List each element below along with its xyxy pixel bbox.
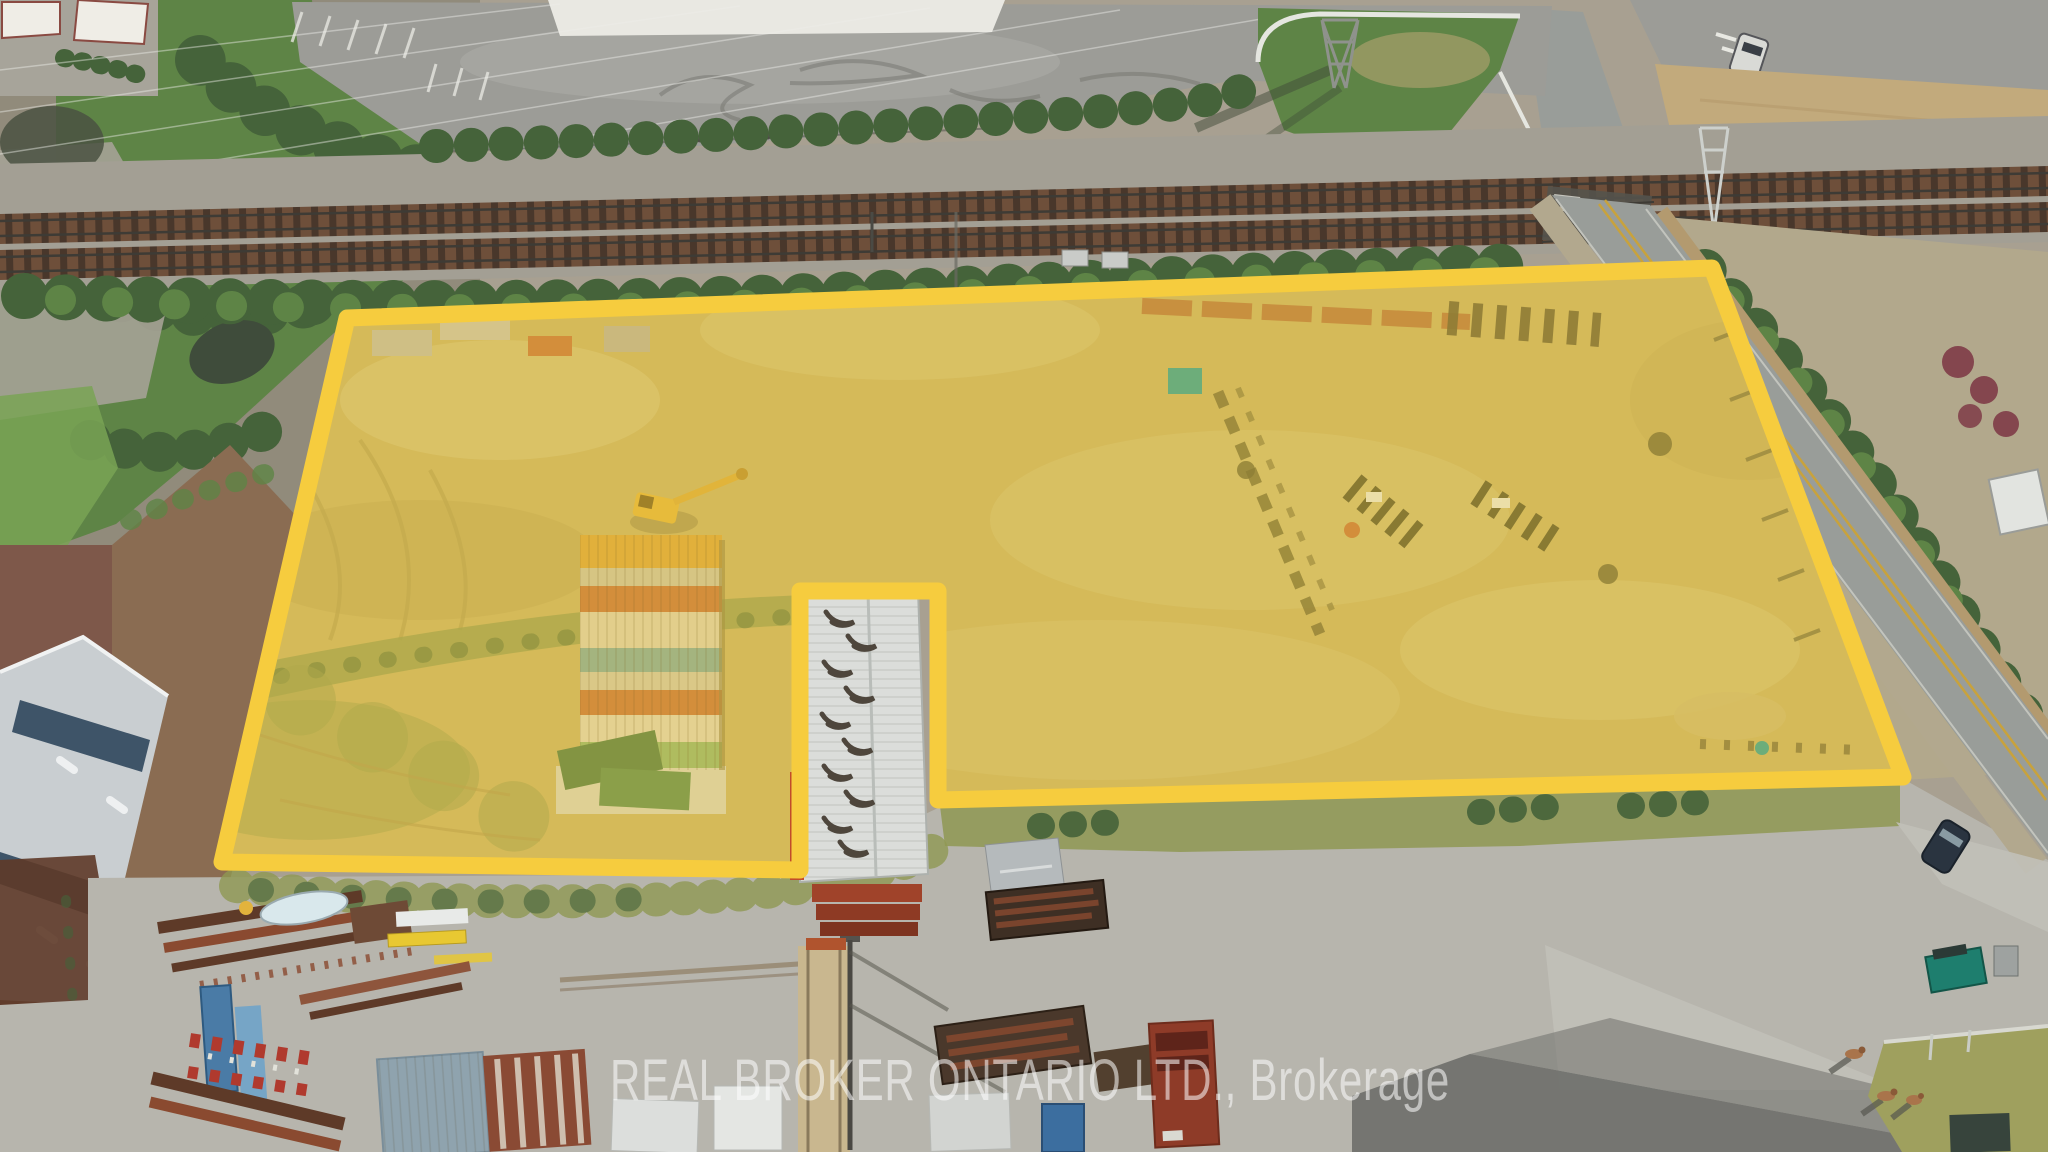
red-steel-piece <box>806 938 846 950</box>
maroon-shrub <box>1958 404 1982 428</box>
signal-box <box>1102 252 1128 268</box>
maroon-shrub <box>1993 411 2019 437</box>
maroon-shrub <box>1942 346 1974 378</box>
maroon-shrub <box>1970 376 1998 404</box>
white-roof-building <box>2 2 60 38</box>
deer-head <box>1891 1089 1898 1096</box>
deer-head <box>1859 1047 1866 1054</box>
roof-ribs <box>377 1052 490 1152</box>
red-steel-stack <box>820 922 918 936</box>
deer-head <box>1918 1093 1924 1099</box>
signal-box <box>1062 250 1088 266</box>
warehouse-roof-ribs <box>800 590 928 882</box>
small-cart <box>1994 946 2018 976</box>
concrete-pad <box>548 0 1005 36</box>
dumpster <box>1949 1113 2010 1152</box>
utility-truck <box>1989 469 2048 534</box>
yellow-equipment <box>239 901 253 915</box>
northwest-buildings <box>0 0 158 96</box>
south-building <box>377 1045 591 1152</box>
white-roof-building <box>74 0 148 44</box>
aerial-photo: REAL BROKER ONTARIO LTD., Brokerage <box>0 0 2048 1152</box>
red-steel-stack <box>812 884 922 902</box>
red-steel-stack <box>816 904 920 920</box>
watermark-text: REAL BROKER ONTARIO LTD., Brokerage <box>610 1048 1450 1113</box>
red-unit-label <box>1162 1130 1182 1141</box>
dry-grass-patch <box>1350 32 1490 88</box>
